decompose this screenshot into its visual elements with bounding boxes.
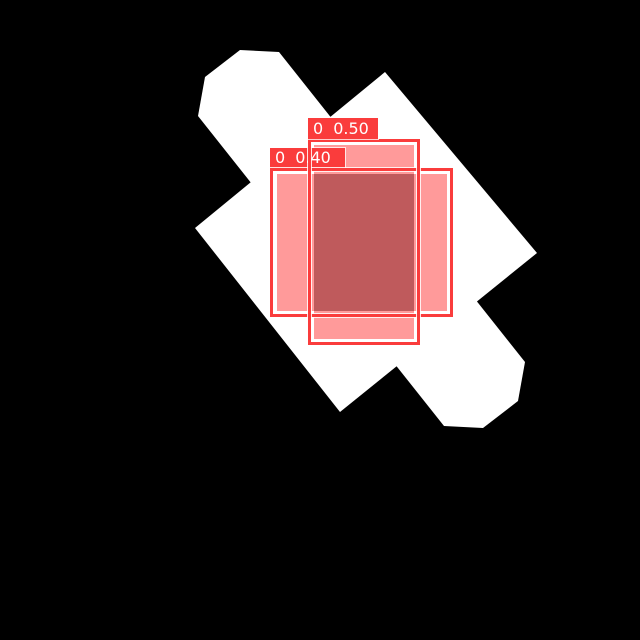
detection-canvas: 0 0.40 0 0.50 [0, 0, 640, 640]
class-id-b: 0 [275, 150, 285, 166]
detection-bbox-a [308, 139, 420, 345]
detection-label-a: 0 0.50 [308, 118, 378, 139]
class-id-a: 0 [313, 121, 323, 137]
score-a: 0.50 [333, 121, 369, 137]
